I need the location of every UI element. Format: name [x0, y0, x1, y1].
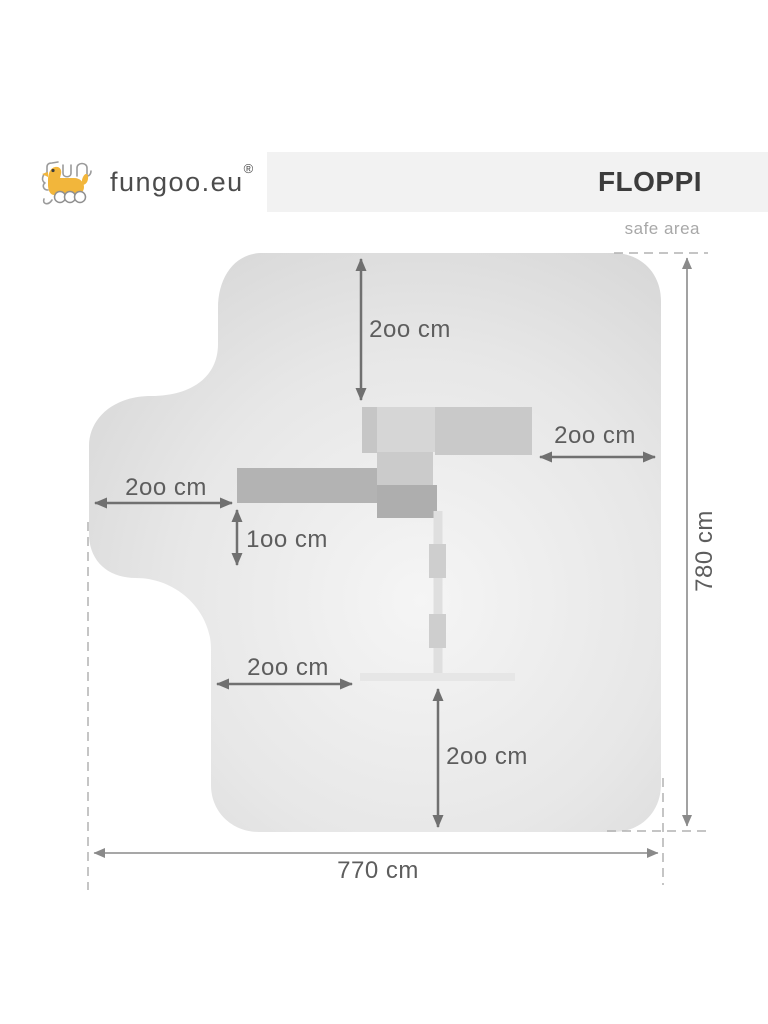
swing-crossbar [360, 673, 515, 681]
structure-wing-left [237, 468, 377, 503]
page: fungoo.eu® FLOPPI safe area [0, 0, 768, 1024]
label-left-clearance: 2oo cm [125, 474, 207, 502]
label-swing-side-clearance: 2oo cm [247, 654, 329, 682]
structure-tower [377, 485, 437, 518]
structure-strip [362, 407, 377, 453]
structure-platform-light [377, 407, 435, 452]
swing-beam [434, 511, 443, 678]
structure-wing-right [435, 407, 532, 455]
label-top-clearance: 2oo cm [369, 316, 451, 344]
label-swing-front-clearance: 2oo cm [446, 743, 528, 771]
label-overall-width: 770 cm [337, 857, 419, 885]
swing-seat-2 [429, 614, 446, 648]
swing-seat-1 [429, 544, 446, 578]
structure-deck-mid [377, 452, 433, 485]
label-deck-clearance: 1oo cm [246, 526, 328, 554]
label-right-clearance: 2oo cm [554, 422, 636, 450]
label-overall-depth: 780 cm [691, 510, 719, 592]
